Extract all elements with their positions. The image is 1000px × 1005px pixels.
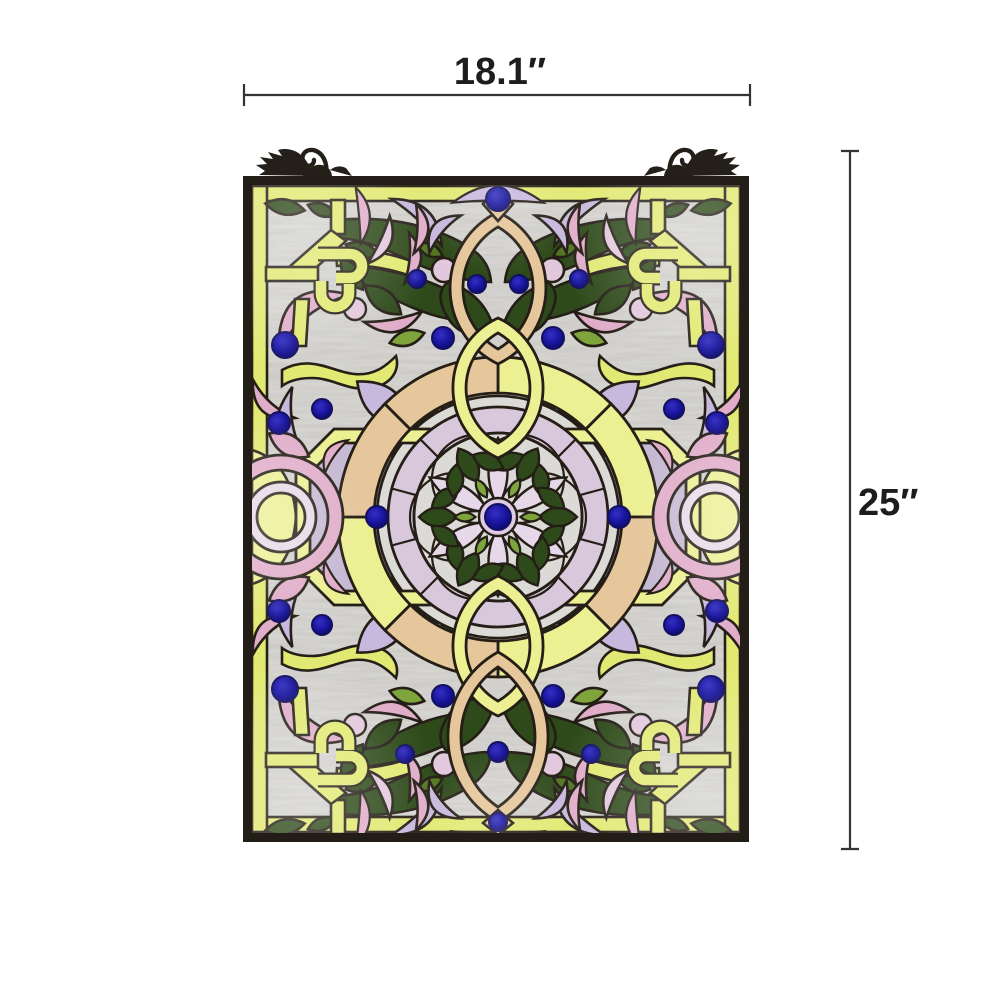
svg-text:25″: 25″: [858, 482, 918, 524]
svg-text:18.1″: 18.1″: [454, 51, 546, 93]
